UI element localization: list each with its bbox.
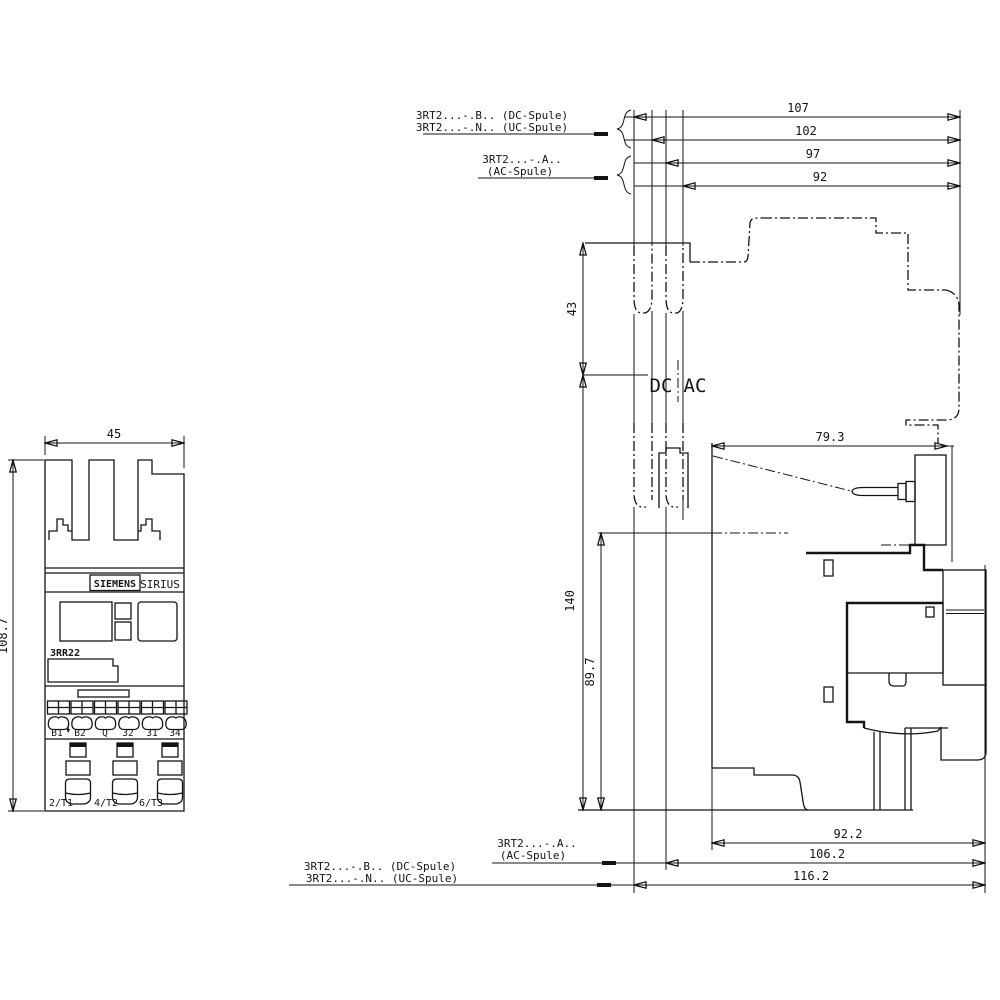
top-coil-annotations: 3RT2...-.B.. (DC-Spule) 3RT2...-.N.. (UC… bbox=[416, 109, 631, 194]
bottom-coil-annotations: 3RT2...-.A.. (AC-Spule) 3RT2...-.B.. (DC… bbox=[304, 837, 577, 885]
module-top-step bbox=[806, 545, 943, 570]
side-top-face bbox=[585, 243, 690, 262]
terminal-label-q: Q bbox=[102, 728, 108, 739]
coil-prong-lower-right bbox=[666, 423, 683, 507]
module-box-light-edge bbox=[847, 603, 943, 673]
actuation-pin bbox=[852, 488, 898, 496]
power-terminal-label-2t1: 2/T1 bbox=[49, 798, 73, 809]
power-terminal-label-4t2: 4/T2 bbox=[94, 798, 118, 809]
dim-92: 92 bbox=[813, 170, 827, 184]
power-terminal-label-6t3: 6/T3 bbox=[139, 798, 163, 809]
label-plate bbox=[48, 659, 118, 682]
dim-106-2: 106.2 bbox=[809, 847, 845, 861]
terminal-label-31: 31 bbox=[146, 728, 158, 739]
module-upper-block bbox=[915, 455, 946, 545]
coil-prong-upper-left bbox=[634, 246, 652, 313]
dim-43: 43 bbox=[565, 302, 579, 316]
dim-79-3: 79.3 bbox=[816, 430, 845, 444]
dim-height: 108.7 bbox=[0, 618, 10, 654]
dimension-drawing: 3RT2...-.B.. (DC-Spule) 3RT2...-.N.. (UC… bbox=[0, 0, 1000, 1000]
series-text: SIRIUS bbox=[140, 578, 180, 591]
module-rear-lower bbox=[941, 685, 986, 760]
side-view: DC AC bbox=[578, 218, 986, 810]
coil-ac-label: AC bbox=[684, 375, 707, 397]
clip-hook-left bbox=[49, 519, 72, 540]
dim-116-2: 116.2 bbox=[793, 869, 829, 883]
terminal-label-34: 34 bbox=[169, 728, 181, 739]
brace-ac bbox=[617, 156, 631, 194]
pin-base bbox=[906, 482, 915, 502]
dim-89-7: 89.7 bbox=[583, 658, 597, 687]
model-text: 3RR22 bbox=[50, 648, 80, 659]
dim-107: 107 bbox=[787, 101, 809, 115]
bottom-leader2-line2: 3RT2...-.N.. (UC-Spule) bbox=[306, 872, 458, 885]
marker-bar bbox=[78, 690, 129, 697]
bottom-leader1-line2: (AC-Spule) bbox=[500, 849, 566, 862]
mounting-hole-upper bbox=[824, 560, 833, 576]
coil-dc-label: DC bbox=[650, 375, 673, 397]
terminal-label-32: 32 bbox=[122, 728, 133, 739]
terminal-label-b2: B2 bbox=[74, 728, 85, 739]
plug-in-marker-icon bbox=[67, 729, 71, 733]
dim-97: 97 bbox=[806, 147, 820, 161]
top-dimensions: 107 102 97 92 bbox=[624, 101, 985, 893]
brand-text: SIEMENS bbox=[94, 579, 136, 590]
button-window-bottom bbox=[115, 622, 131, 640]
clip-hook-right bbox=[138, 519, 160, 540]
terminal-label-b1: B1 bbox=[51, 728, 63, 739]
front-view: 45 108.7 SIEMENS SIRIUS 3RR22 B1 bbox=[0, 427, 187, 811]
dim-102: 102 bbox=[795, 124, 817, 138]
side-lower-body bbox=[712, 443, 808, 810]
side-upper-step bbox=[690, 218, 762, 262]
button-window-top bbox=[115, 603, 131, 619]
top-leader1-line2: 3RT2...-.N.. (UC-Spule) bbox=[416, 121, 568, 134]
dim-92-2: 92.2 bbox=[834, 827, 863, 841]
coil-prong-upper-right bbox=[666, 246, 683, 313]
display-window bbox=[60, 602, 112, 641]
module-box-heavy-edge bbox=[847, 603, 943, 674]
module-notch bbox=[889, 673, 906, 686]
side-rear-outline bbox=[906, 290, 959, 443]
brace-dc-uc bbox=[617, 110, 631, 148]
lever-line bbox=[713, 456, 851, 491]
module-window bbox=[926, 607, 934, 617]
module-rear-block bbox=[943, 570, 986, 685]
side-upper-outline bbox=[762, 218, 946, 290]
coil-prong-lower-left bbox=[634, 423, 652, 507]
side-dimensions: 43 140 89.7 79.3 bbox=[563, 243, 954, 810]
module-left-lower bbox=[847, 674, 864, 728]
pin-collar bbox=[898, 484, 906, 500]
top-leader2-line2: (AC-Spule) bbox=[487, 165, 553, 178]
dim-140: 140 bbox=[563, 590, 577, 612]
dial-window bbox=[138, 602, 177, 641]
dim-width: 45 bbox=[107, 427, 121, 441]
mounting-hole-lower bbox=[824, 687, 833, 702]
